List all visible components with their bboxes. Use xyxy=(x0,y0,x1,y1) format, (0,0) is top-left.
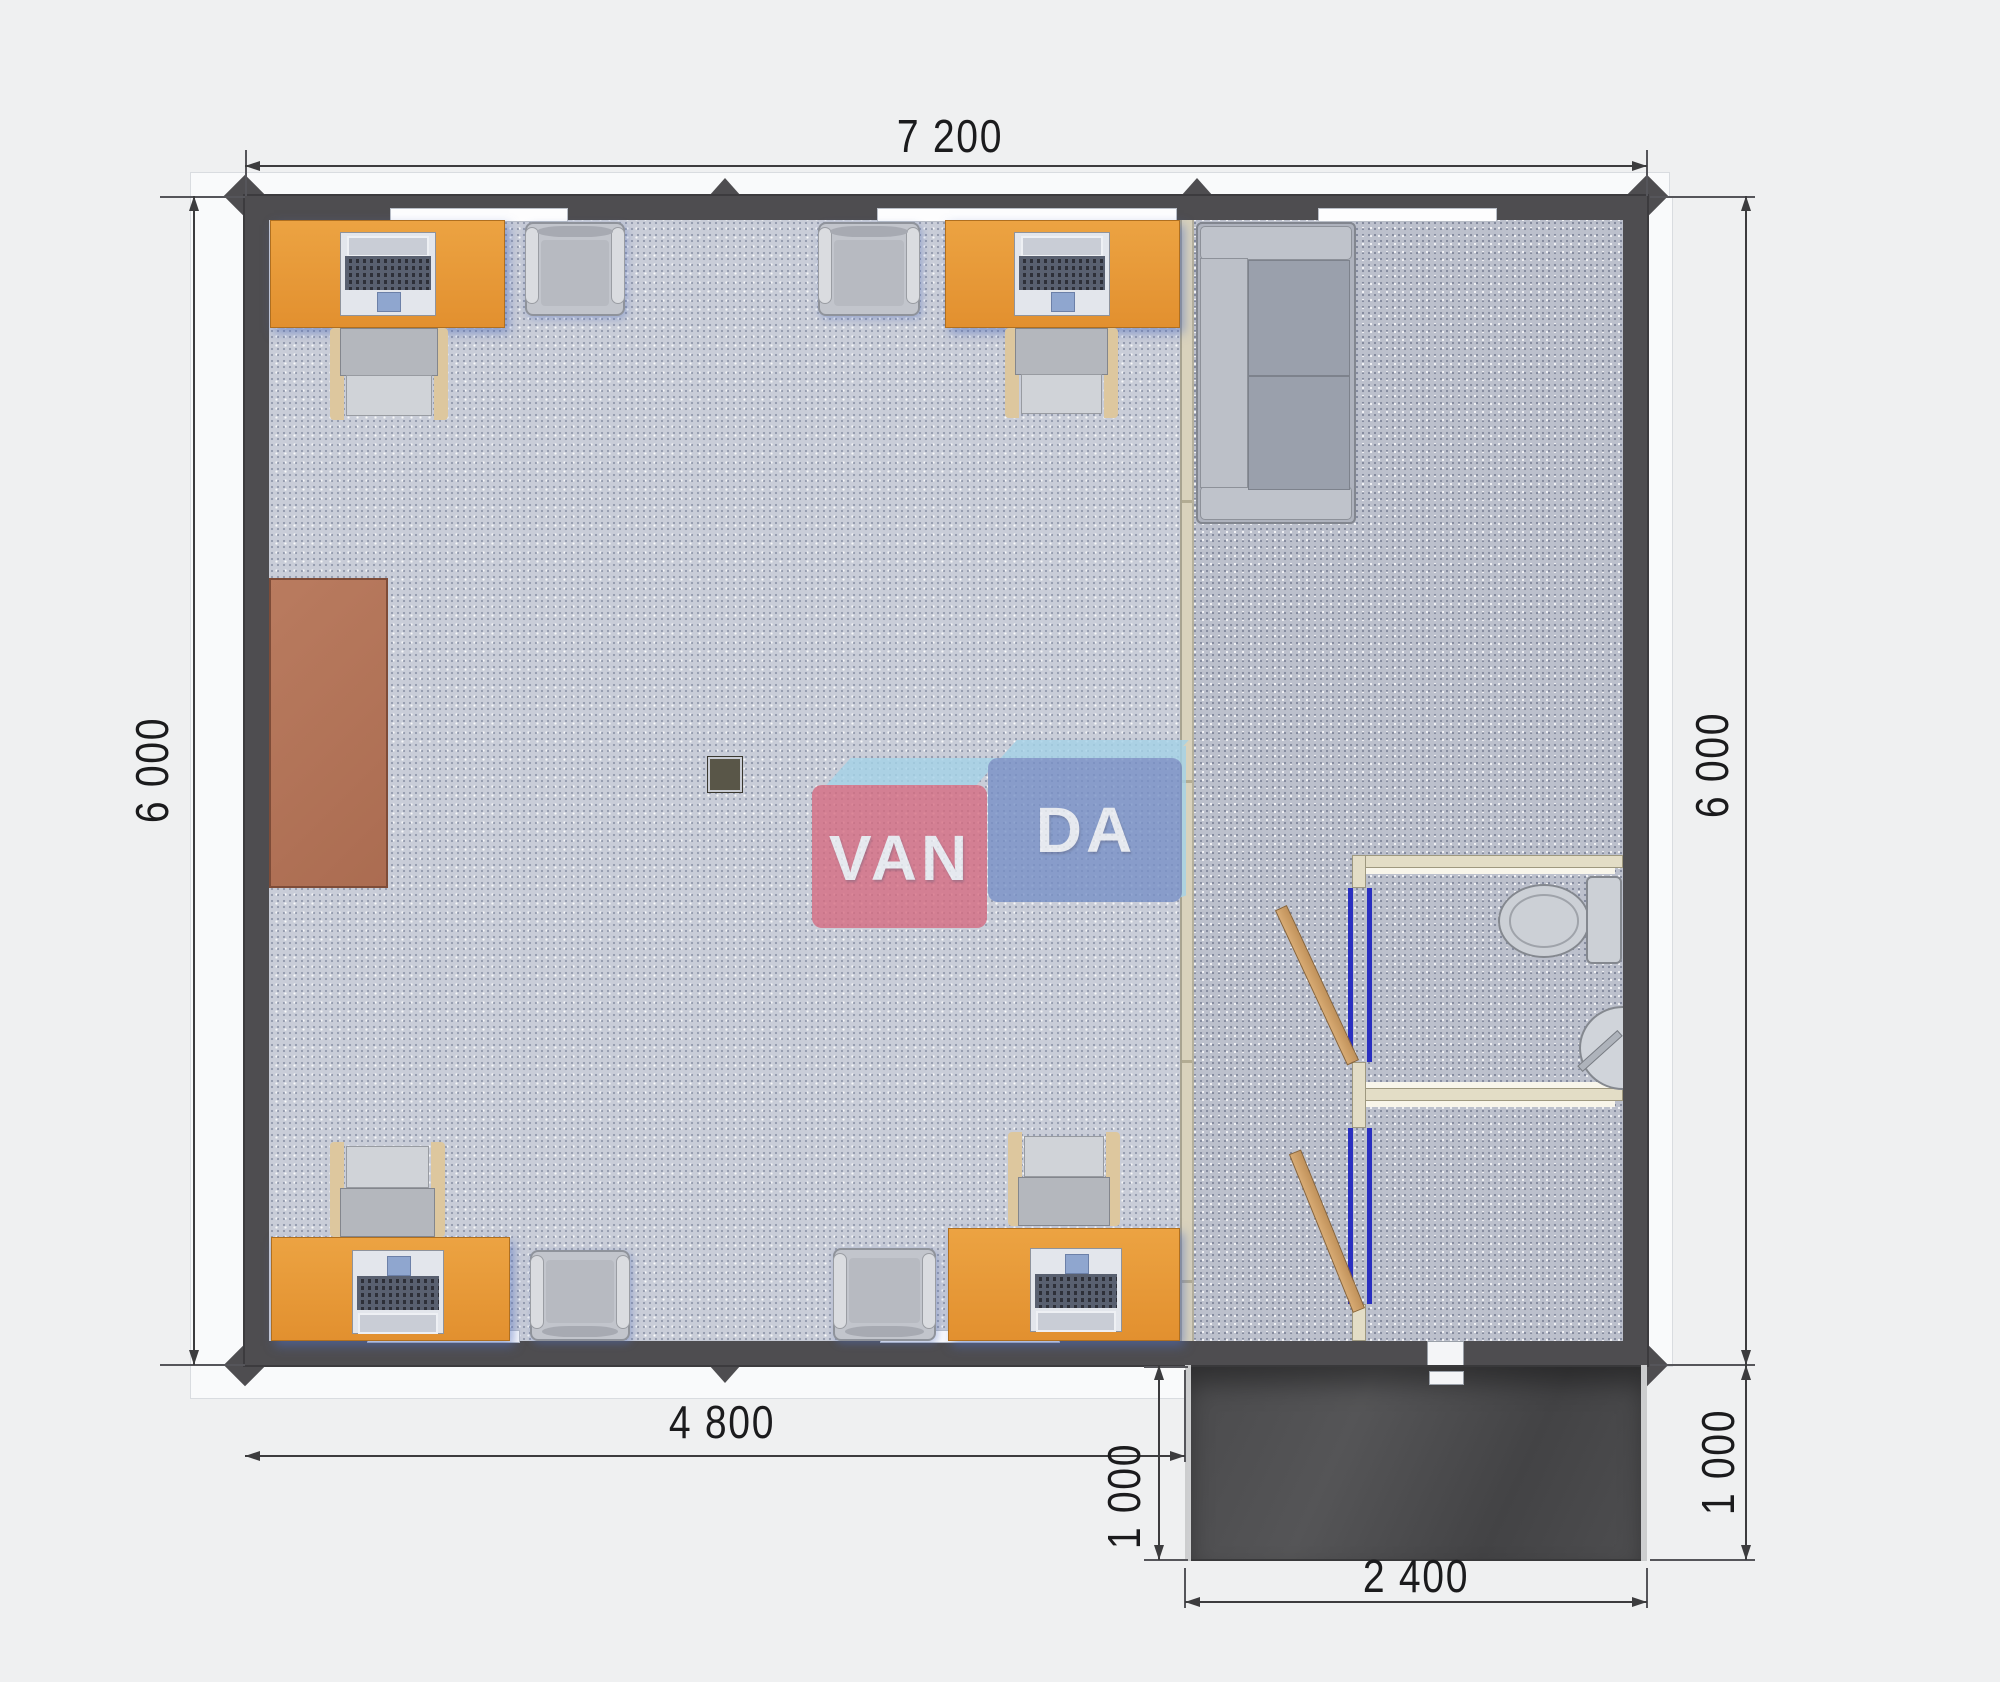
dimension-line-porch-right xyxy=(1745,1365,1747,1560)
extension-line xyxy=(160,1364,245,1366)
office-chair xyxy=(330,1142,445,1237)
partition-joint xyxy=(1182,1060,1192,1063)
dim-label-main-width: 4 800 xyxy=(669,1395,775,1449)
armrest xyxy=(818,227,832,304)
armrest xyxy=(611,227,625,304)
extension-line xyxy=(1646,150,1648,196)
porch-deck xyxy=(1185,1365,1647,1561)
chair-seat xyxy=(1024,1136,1104,1177)
armrest xyxy=(922,1253,936,1329)
bathroom-wall-top xyxy=(1352,855,1623,868)
bathroom-wall-liner xyxy=(1366,868,1615,874)
dimension-line-left-height xyxy=(193,196,195,1365)
laptop-keyboard xyxy=(345,256,432,290)
laptop-icon xyxy=(352,1250,444,1334)
armrest xyxy=(906,227,920,304)
office-chair xyxy=(1008,1132,1120,1226)
laptop-keyboard xyxy=(1019,256,1106,290)
sill-top xyxy=(190,172,1670,198)
chair-back xyxy=(1015,328,1108,375)
bathroom-wall-left-segment xyxy=(1352,855,1366,888)
base xyxy=(537,226,613,237)
laptop-icon xyxy=(1030,1248,1122,1332)
laptop-screen xyxy=(358,1313,437,1333)
seat xyxy=(546,1260,614,1323)
dimension-line-main-width xyxy=(245,1455,1185,1457)
logo-text-van: VAN xyxy=(829,821,971,895)
laptop-screen xyxy=(347,236,430,256)
ridge-marker-bottom-1 xyxy=(709,1365,741,1383)
chair-back xyxy=(340,328,438,376)
logo-text-da: DA xyxy=(1036,793,1136,867)
entry-door-opening xyxy=(1427,1341,1464,1366)
armrest xyxy=(616,1255,630,1329)
extension-line xyxy=(245,150,247,196)
toilet-tank xyxy=(1586,876,1622,964)
dimension-line-right-height xyxy=(1745,196,1747,1365)
extension-line xyxy=(1650,196,1755,198)
chair-seat xyxy=(1021,374,1102,414)
sofa xyxy=(1196,222,1356,524)
laptop-icon xyxy=(340,232,436,316)
door-jamb xyxy=(1348,888,1353,1062)
sofa-armrest-bottom xyxy=(1200,486,1352,520)
dim-label-total-width: 7 200 xyxy=(897,109,1003,163)
sofa-armrest-top xyxy=(1200,226,1352,260)
dimension-line-porch-left xyxy=(1158,1365,1160,1560)
laptop-icon xyxy=(1014,232,1110,316)
partition-joint xyxy=(1182,500,1192,503)
partition-joint xyxy=(1182,1280,1192,1283)
sill-right xyxy=(1647,196,1673,1367)
extension-line xyxy=(1650,1559,1755,1561)
sofa-backrest xyxy=(1200,258,1248,488)
armchair xyxy=(818,222,920,316)
dimension-line-total-width xyxy=(245,165,1647,167)
ridge-marker-top-1 xyxy=(709,178,741,196)
sill-bottom xyxy=(190,1365,1187,1399)
floor-plan-page: { "plan": { "dimensions": { "total_width… xyxy=(0,0,2000,1682)
chair-seat xyxy=(346,375,432,416)
door-jamb xyxy=(1367,888,1372,1062)
laptop-touchpad xyxy=(377,292,402,312)
base xyxy=(542,1326,618,1337)
laptop-touchpad xyxy=(387,1256,411,1276)
armchair xyxy=(525,222,625,316)
door-jamb xyxy=(1367,1128,1372,1304)
armrest xyxy=(530,1255,544,1329)
bathroom-wall-middle xyxy=(1352,1088,1623,1101)
extension-line xyxy=(1650,1364,1755,1366)
dim-label-porch-depth-right: 1 000 xyxy=(1691,1409,1745,1515)
laptop-screen xyxy=(1021,236,1104,256)
entry-threshold xyxy=(1429,1371,1464,1385)
cabinet xyxy=(269,578,388,888)
base xyxy=(830,226,908,237)
extension-line xyxy=(1144,1559,1188,1561)
bathroom-wall-left-segment xyxy=(1352,1062,1366,1128)
toilet-icon xyxy=(1498,884,1590,958)
chair-back xyxy=(340,1188,435,1238)
office-chair xyxy=(330,328,448,420)
extension-line xyxy=(1184,1370,1186,1462)
laptop-touchpad xyxy=(1051,292,1076,312)
seat xyxy=(849,1258,920,1323)
chair-seat xyxy=(346,1146,429,1188)
seat xyxy=(541,240,609,306)
armchair xyxy=(833,1248,936,1341)
armchair xyxy=(530,1250,630,1341)
porch-trim-right xyxy=(1641,1365,1647,1561)
toilet-bowl-rim xyxy=(1509,894,1579,947)
sofa-cushion xyxy=(1248,376,1350,490)
laptop-keyboard xyxy=(357,1276,440,1310)
armrest xyxy=(525,227,539,304)
dim-label-porch-width: 2 400 xyxy=(1363,1549,1469,1603)
bathroom-wall-liner xyxy=(1366,1101,1615,1107)
bathroom-wall-liner xyxy=(1366,1082,1615,1088)
base xyxy=(845,1326,924,1337)
laptop-keyboard xyxy=(1035,1274,1118,1308)
dim-label-left-height: 6 000 xyxy=(125,717,179,823)
window-top-3 xyxy=(1318,208,1497,222)
vanda-watermark: VAN DA xyxy=(810,738,1185,933)
logo-bevel-pink xyxy=(825,758,1000,786)
extension-line xyxy=(1144,1366,1188,1368)
ridge-marker-top-2 xyxy=(1181,178,1213,196)
column xyxy=(708,757,742,792)
office-chair xyxy=(1005,328,1118,418)
laptop-screen xyxy=(1036,1311,1115,1331)
dim-label-porch-depth-left: 1 000 xyxy=(1097,1443,1151,1549)
seat xyxy=(834,240,904,306)
armrest xyxy=(833,1253,847,1329)
laptop-touchpad xyxy=(1065,1254,1089,1274)
sofa-cushion xyxy=(1248,260,1350,376)
sill-left xyxy=(190,196,247,1367)
chair-back xyxy=(1018,1177,1110,1226)
extension-line xyxy=(160,196,245,198)
dim-label-right-height: 6 000 xyxy=(1685,712,1739,818)
